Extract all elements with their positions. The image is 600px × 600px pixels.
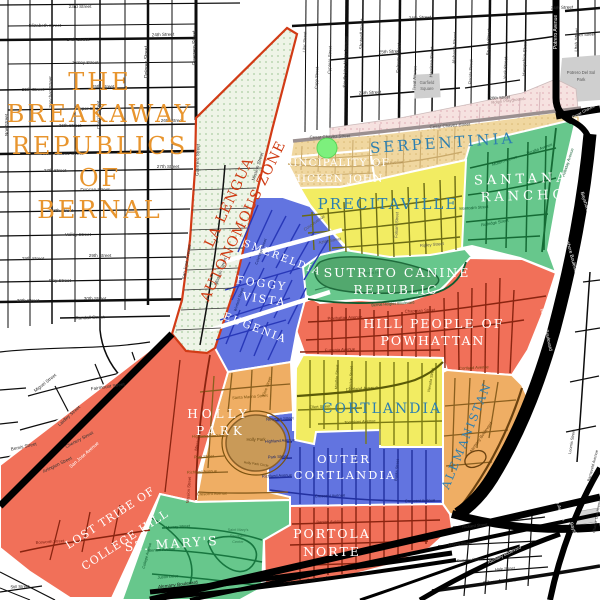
street-label: Dolores Street: [144, 45, 150, 78]
street-label: Holly Park: [246, 437, 266, 442]
street-label: Utah Street: [574, 28, 580, 52]
map-title-line-1: THE: [68, 68, 131, 96]
region-label-powhattan-2: POWHATTAN: [381, 333, 486, 348]
region-label-cortlandia: CORTLANDIA: [322, 401, 442, 417]
bernal-republics-map: 23rd StreetElizabeth Street24th Street24…: [0, 0, 600, 600]
region-label-chicken-john-1: PRINCIPALITY OF: [276, 157, 389, 169]
region-label-sutrito-1: SUTRITO CANINE: [324, 265, 471, 280]
street-label: Jersey Street: [71, 60, 99, 65]
street-label: 27th Street: [157, 164, 180, 169]
street-label: Guerrero Street: [192, 30, 198, 65]
green-marker-dot: [317, 138, 337, 158]
region-label-sutrito-2: REPUBLIC: [353, 282, 438, 297]
street-label: Center: [232, 540, 244, 544]
street-label: Still Street: [10, 584, 30, 590]
region-label-holly-park-2: PARK: [196, 424, 246, 438]
street-label: Elizabeth Street: [29, 23, 62, 28]
region-label-outer-cortlandia-2: CORTLANDIA: [294, 468, 396, 482]
street-label: Treat Avenue: [412, 65, 418, 91]
map-title-line-5: BERNAL: [37, 196, 163, 224]
street-label: Saint Mary's: [228, 528, 249, 532]
street-label: 23rd Street: [69, 4, 92, 9]
street-label: 29th Street: [22, 256, 45, 261]
map-title-line-4: OF: [79, 164, 121, 192]
street-label: Randall Street: [75, 314, 105, 320]
street-label: Potrero Del Sol: [567, 70, 595, 75]
region-label-holly-park-1: HOLLY: [187, 407, 250, 421]
street-label: Park: [577, 77, 587, 82]
street-label: Florida Street: [468, 58, 474, 84]
street-label: 24th Street: [67, 37, 90, 42]
street-label: 27th Street: [44, 168, 67, 173]
street-label: Valley Street: [65, 232, 91, 237]
street-label: 30th Street: [17, 298, 40, 303]
street-label: Potrero Avenue: [553, 15, 559, 50]
street-label: Lilac Street: [302, 31, 308, 53]
street-label: Day Street: [49, 278, 71, 283]
street-label: 24th Street: [152, 32, 175, 38]
street-label: Recreation: [230, 534, 248, 538]
street-label: Cypress Street: [327, 45, 333, 74]
region-label-portola-norte-1: PORTOLA: [293, 526, 371, 541]
street-label: 25th Street: [22, 87, 45, 92]
region-label-outer-cortlandia-1: OUTER: [317, 452, 371, 466]
map-title-line-2: BREAKAWAY: [7, 100, 194, 128]
region-label-precitaville: PRECITAVILLE: [318, 195, 459, 213]
street-label: Square: [420, 86, 434, 91]
street-label: Capp Street: [314, 66, 320, 89]
street-label: York Street: [503, 56, 509, 79]
street-label: Folsom Street: [394, 211, 400, 238]
region-label-powhattan-1: HILL PEOPLE OF: [364, 316, 505, 331]
map-title-line-3: REPUBLICS: [12, 132, 188, 160]
street-label: Benton Avenue: [316, 519, 344, 525]
region-label-portola-norte-2: NORTE: [303, 544, 361, 559]
street-label: 30th Street: [84, 296, 107, 301]
map-canvas: 23rd StreetElizabeth Street24th Street24…: [0, 0, 600, 600]
street-label: Garfield: [420, 80, 435, 85]
street-label: Folsom Street: [395, 42, 402, 73]
street-label: Bryant Street: [486, 28, 492, 56]
region-label-chicken-john-2: CHICKEN JOHN: [283, 173, 384, 185]
region-label-santana-2: RANCHO: [480, 187, 567, 205]
street-label: 29th Street: [89, 253, 112, 258]
